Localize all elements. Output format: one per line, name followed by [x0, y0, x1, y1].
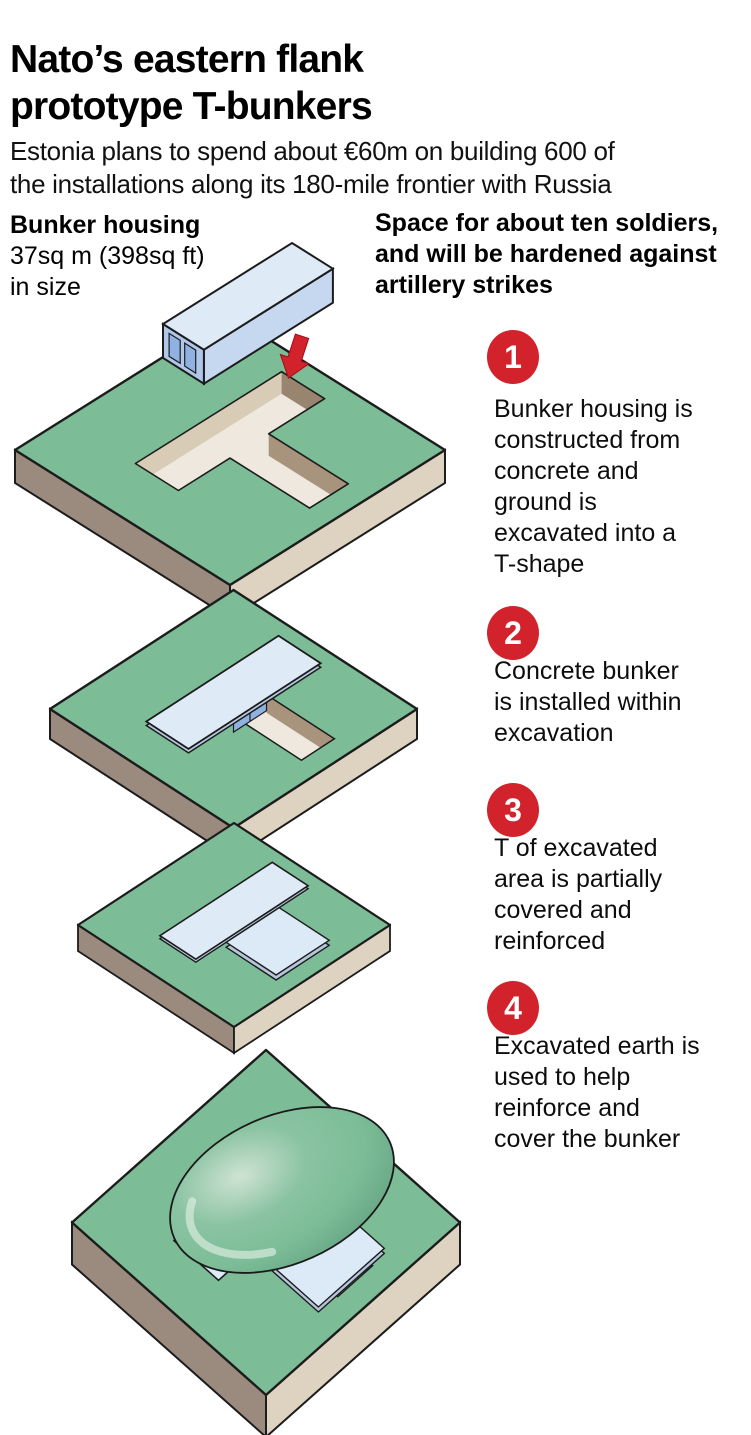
diagram-step-1-excavation: [8, 233, 463, 633]
step-4-badge: 4: [487, 981, 539, 1035]
step-4-text: Excavated earth is used to help reinforc…: [494, 1031, 744, 1155]
step-3-number: 3: [504, 792, 522, 829]
step-2-text: Concrete bunker is installed within exca…: [494, 656, 744, 749]
step-1-text: Bunker housing is constructed from concr…: [494, 394, 744, 580]
step-3-text: T of excavated area is partially covered…: [494, 833, 744, 957]
page-title: Nato’s eastern flank prototype T-bunkers: [10, 36, 372, 130]
page-subtitle: Estonia plans to spend about €60m on bui…: [10, 135, 615, 201]
infographic-t-bunkers: Nato’s eastern flank prototype T-bunkers…: [0, 0, 751, 1435]
step-1-number: 1: [504, 339, 522, 376]
step-3-badge: 3: [487, 783, 539, 837]
step-4-number: 4: [504, 990, 522, 1027]
diagram-step-3-covered: [48, 812, 428, 1067]
step-2-number: 2: [504, 615, 522, 652]
step-2-badge: 2: [487, 606, 539, 660]
diagram-step-4-mound: [50, 1040, 480, 1435]
step-1-badge: 1: [487, 330, 539, 384]
